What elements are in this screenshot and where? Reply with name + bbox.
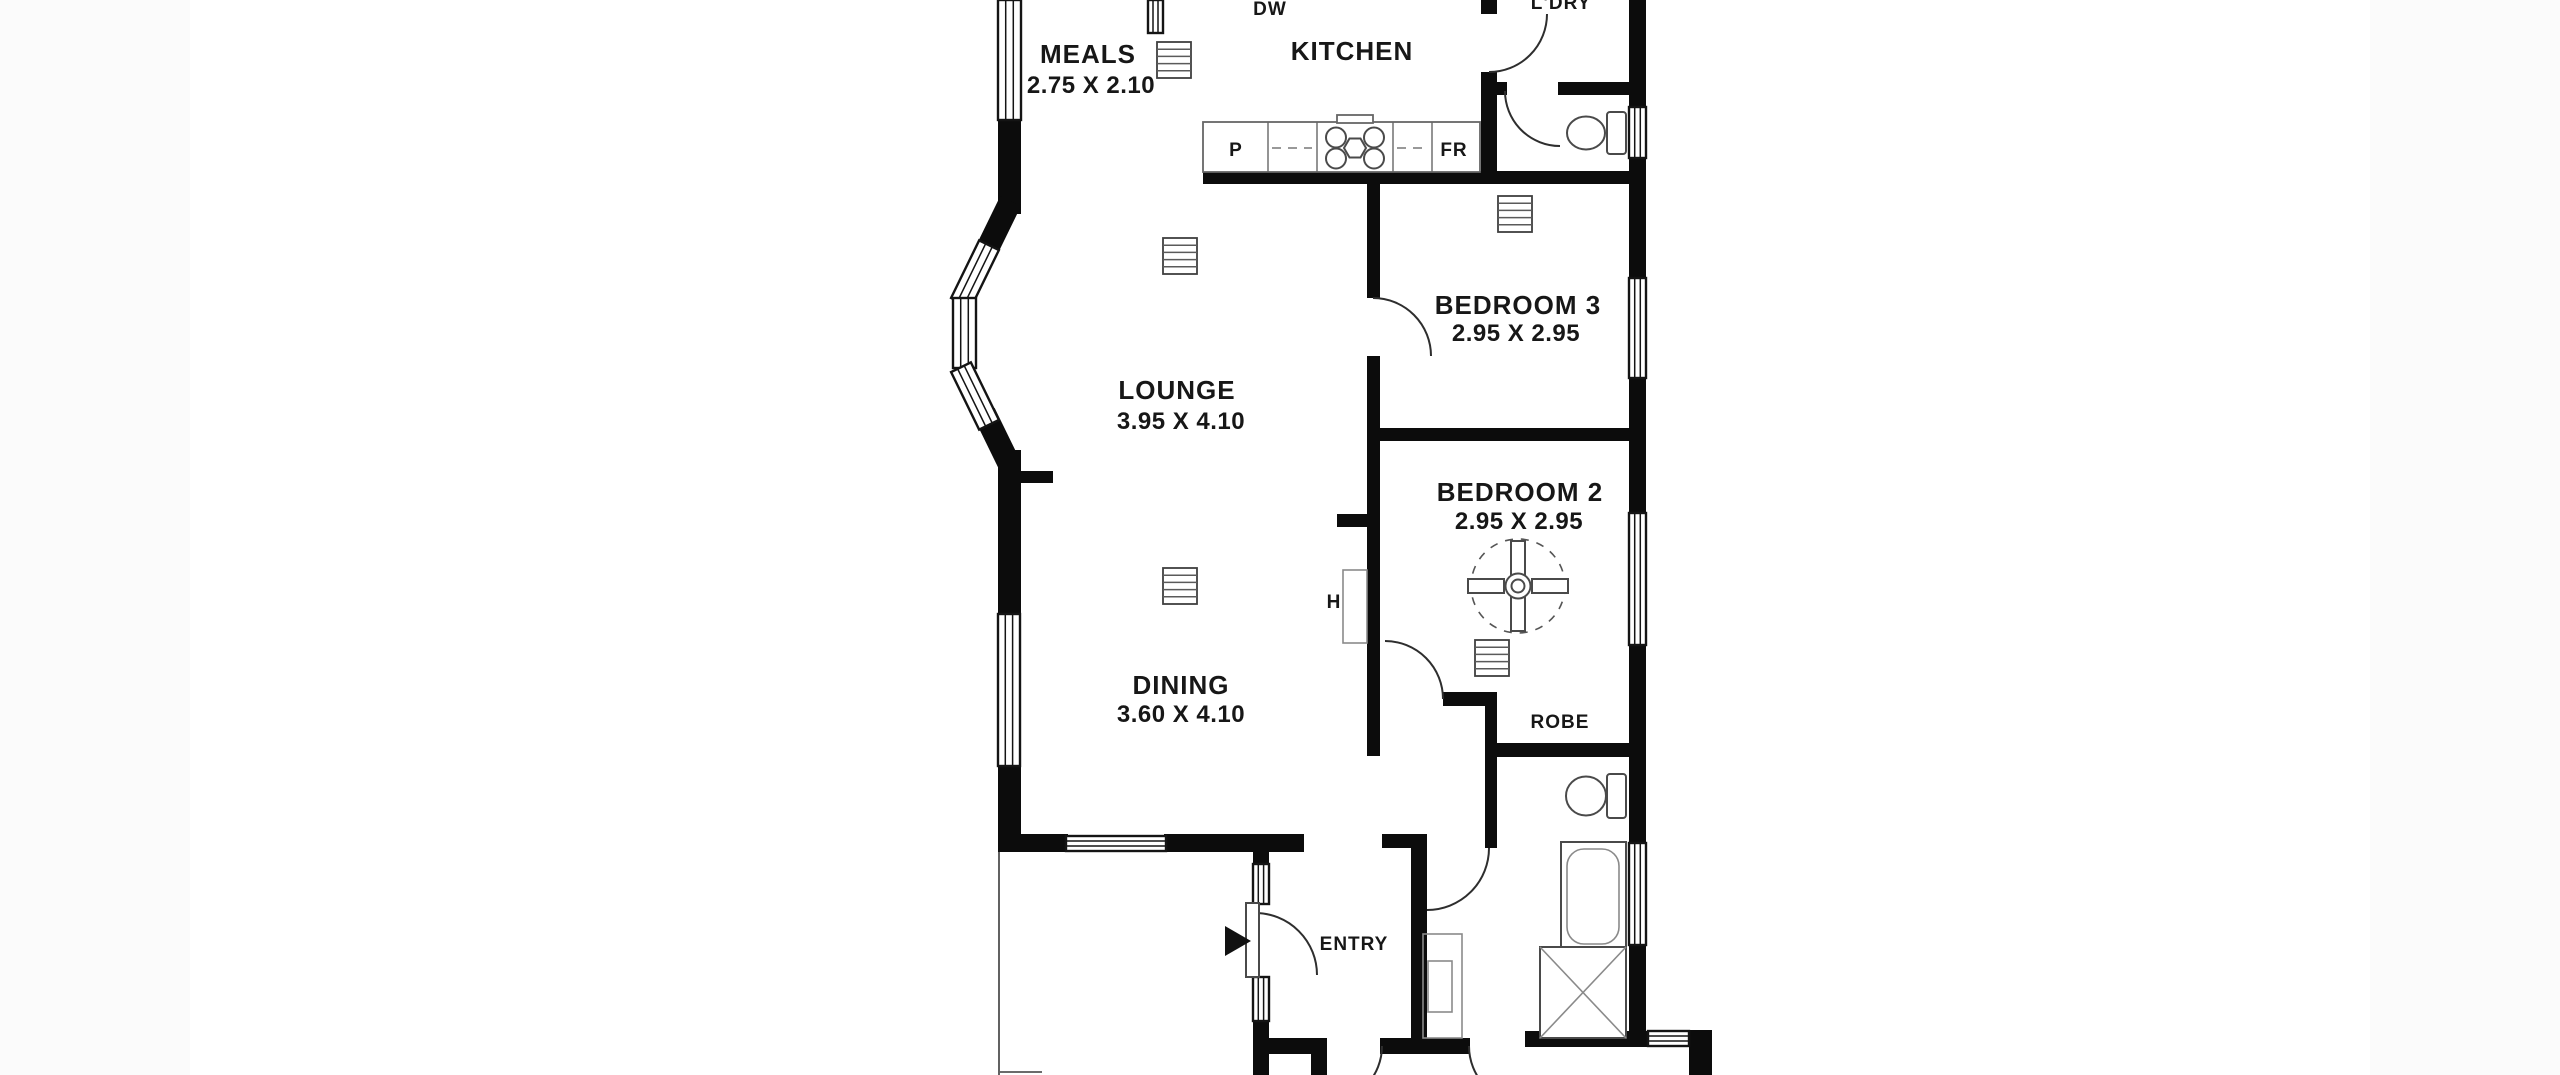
bedroom2-dims: 2.95 X 2.95 <box>1455 508 1583 535</box>
window-symbol <box>1066 836 1166 851</box>
heater-vent-icon <box>1475 640 1509 676</box>
kitchen-label: KITCHEN <box>1291 36 1414 66</box>
wc-toilet-icon <box>1567 112 1626 154</box>
fridge-label: FR <box>1440 140 1467 161</box>
robe-label: ROBE <box>1531 712 1590 733</box>
window-symbol <box>998 0 1021 120</box>
bedroom3-dims: 2.95 X 2.95 <box>1452 320 1580 347</box>
door-swing-symbol <box>1489 14 1547 72</box>
window-symbol <box>1629 278 1646 378</box>
hot-water-unit <box>1343 570 1367 643</box>
window-symbol <box>1629 513 1646 645</box>
window-symbol <box>953 298 976 368</box>
ceiling-fan-icon <box>1468 539 1568 633</box>
bedroom2-label: BEDROOM 2 <box>1437 477 1603 507</box>
kitchen-bench <box>1203 115 1480 172</box>
entry-label: ENTRY <box>1320 934 1389 955</box>
lounge-dims: 3.95 X 4.10 <box>1117 408 1245 435</box>
bedroom3-label: BEDROOM 3 <box>1435 290 1601 320</box>
door-swing-symbol <box>1469 1046 1527 1075</box>
lounge-label: LOUNGE <box>1118 375 1235 405</box>
window-symbol <box>951 362 999 429</box>
window-symbol <box>1629 843 1646 945</box>
floor-plan: MEALS 2.75 X 2.10 KITCHEN L'DRY BEDROOM … <box>0 0 2560 1075</box>
meals-label: MEALS <box>1040 39 1136 69</box>
heater-vent-icon <box>1163 238 1197 274</box>
bathtub-icon <box>1561 842 1626 951</box>
dining-dims: 3.60 X 4.10 <box>1117 701 1245 728</box>
door-swing-symbol <box>1385 641 1443 699</box>
linen-cupboard <box>1423 934 1462 1038</box>
heater-vent-icon <box>1157 42 1191 78</box>
shower-icon <box>1540 947 1626 1038</box>
door-swing-symbol <box>1325 1046 1382 1075</box>
door-swing-symbol <box>1373 298 1431 356</box>
laundry-label: L'DRY <box>1531 0 1592 14</box>
door-swing-symbol <box>1505 91 1560 146</box>
screenshot-stage: MEALS 2.75 X 2.10 KITCHEN L'DRY BEDROOM … <box>0 0 2560 1075</box>
dining-label: DINING <box>1133 670 1230 700</box>
window-symbol <box>1253 977 1269 1021</box>
door-swing-symbol <box>1427 848 1489 910</box>
window-symbol <box>1148 0 1163 33</box>
heater-vent-icon <box>1498 196 1532 232</box>
hot-water-label: H <box>1327 592 1342 613</box>
window-symbol <box>1648 1031 1689 1046</box>
heater-vent-icon <box>1163 568 1197 604</box>
porch-outline <box>999 852 1042 1075</box>
dishwasher-label: DW <box>1253 0 1287 20</box>
window-symbol <box>1253 864 1269 904</box>
window-symbol <box>1629 107 1646 158</box>
meals-dims: 2.75 X 2.10 <box>1027 72 1155 99</box>
toilet-icon <box>1566 774 1626 818</box>
pantry-label: P <box>1229 140 1243 161</box>
door-swing-symbol <box>1255 913 1317 975</box>
window-symbol <box>998 614 1020 766</box>
